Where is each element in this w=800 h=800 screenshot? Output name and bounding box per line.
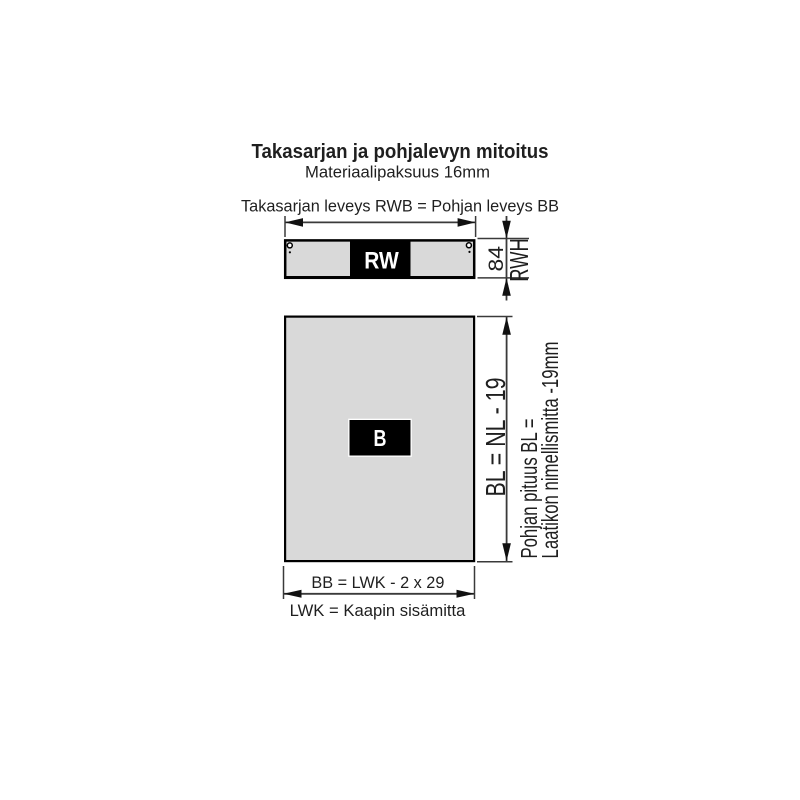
svg-text:LWK = Kaapin sisämitta: LWK = Kaapin sisämitta (290, 601, 466, 620)
svg-text:RW: RW (364, 248, 399, 275)
svg-text:BL = NL - 19: BL = NL - 19 (480, 378, 511, 497)
svg-text:B: B (374, 425, 387, 451)
svg-text:RWH: RWH (506, 238, 534, 282)
svg-text:Takasarjan ja pohjalevyn mitoi: Takasarjan ja pohjalevyn mitoitus (252, 141, 549, 163)
svg-text:84: 84 (484, 246, 508, 272)
svg-text:Materiaalipaksuus 16mm: Materiaalipaksuus 16mm (305, 164, 490, 182)
svg-text:BB = LWK - 2 x 29: BB = LWK - 2 x 29 (311, 573, 444, 592)
svg-text:Laatikon nimellismitta -19mm: Laatikon nimellismitta -19mm (537, 342, 563, 559)
svg-text:Takasarjan leveys RWB = Pohjan: Takasarjan leveys RWB = Pohjan leveys BB (241, 196, 559, 215)
